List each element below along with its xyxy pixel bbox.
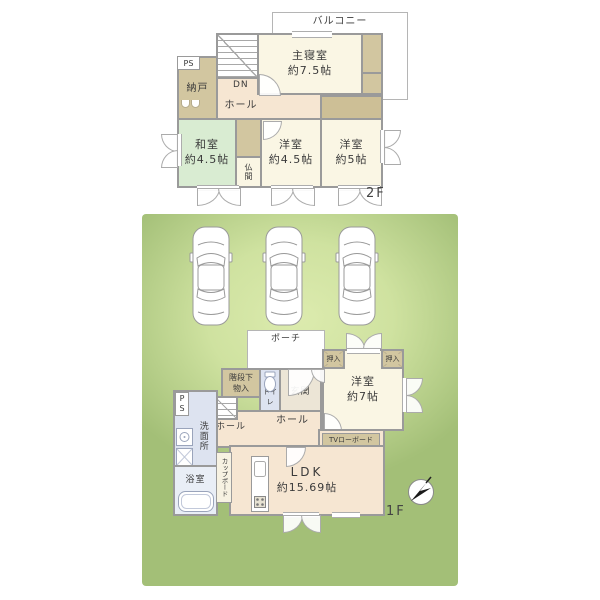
washroom-label: 洗面所 [196, 421, 208, 451]
closet-washitsu [235, 118, 262, 158]
washitsu-size: 約4.5帖 [185, 153, 230, 168]
western5-size: 約5帖 [336, 153, 368, 168]
ps-2f-label: PS [184, 59, 194, 68]
casement-arc [271, 188, 294, 206]
cupboard: カップボード [216, 452, 232, 503]
staircase-2f [216, 33, 259, 79]
balcony-label: バルコニー [313, 15, 368, 28]
closet-divider [363, 72, 381, 93]
closet-western5 [320, 95, 383, 120]
tv-board-label: TVローボード [329, 435, 373, 445]
ldk-size: 約15.69帖 [277, 481, 338, 496]
closet-oshiire-right: 押入 [381, 349, 404, 369]
floor-plan-canvas: バルコニー 納戸 PS ホール DN 主寝室 約7.5帖 [0, 0, 600, 600]
master-bedroom-size: 約7.5帖 [288, 64, 333, 79]
sink-icon [176, 428, 193, 446]
under-stairs-storage: 階段下 物入 [221, 368, 261, 398]
western45-size: 約4.5帖 [269, 153, 314, 168]
car-icon [334, 224, 380, 328]
porch: ポーチ [247, 330, 325, 370]
ps-1f-label: PS [178, 394, 187, 414]
under-stairs-label-2: 物入 [233, 383, 249, 394]
casement-arc [292, 188, 315, 206]
master-bedroom-label: 主寝室 [292, 49, 328, 64]
bathtub-icon [178, 491, 214, 512]
washitsu-label: 和室 [195, 138, 219, 153]
room-washitsu: 和室 約4.5帖 [177, 118, 237, 188]
western7-size: 約7帖 [347, 390, 379, 405]
stove-icon [254, 496, 266, 508]
casement-arc [197, 188, 220, 206]
nando-label: 納戸 [187, 82, 209, 95]
stairs-down-label: DN [233, 80, 249, 92]
casement-arc [384, 147, 401, 165]
car-icon [188, 224, 234, 328]
kitchen-sink-icon [254, 461, 266, 477]
hall-1f-label: ホール [276, 414, 309, 427]
under-stairs-label-1: 階段下 [229, 372, 253, 383]
butsuma-label: 仏間 [243, 163, 254, 181]
oshiire-left-label: 押入 [327, 354, 341, 364]
toilet-icon [263, 371, 277, 393]
ldk-label: LDK [291, 465, 324, 481]
room-western-5: 洋室 約5帖 [320, 118, 383, 188]
casement-arc [384, 130, 401, 148]
room-butsuma: 仏間 [235, 156, 262, 188]
oshiire-right-label: 押入 [386, 354, 400, 364]
casement-arc [218, 188, 241, 206]
western5-label: 洋室 [340, 138, 364, 153]
up-hall-label: ホール [216, 422, 246, 434]
washing-machine-icon [176, 448, 193, 466]
car-icon [261, 224, 307, 328]
window [292, 31, 332, 38]
bathroom-label: 浴室 [185, 475, 205, 487]
tv-board: TVローボード [322, 433, 380, 446]
casement-arc [161, 150, 178, 168]
compass-icon [406, 476, 436, 506]
pipe-space-2f: PS [177, 56, 200, 70]
western7-label: 洋室 [351, 375, 375, 390]
cupboard-label: カップボード [219, 458, 229, 497]
floor-2-label: 2F [366, 186, 386, 201]
pipe-space-1f: PS [175, 392, 189, 416]
floor-1-label: 1F [386, 504, 406, 519]
window [332, 512, 360, 518]
closet-oshiire-left: 押入 [322, 349, 345, 369]
closet-master [361, 33, 383, 95]
casement-arc [338, 188, 361, 206]
western45-label: 洋室 [279, 138, 303, 153]
hall-2f-label: ホール [225, 99, 258, 112]
porch-label: ポーチ [271, 334, 301, 346]
